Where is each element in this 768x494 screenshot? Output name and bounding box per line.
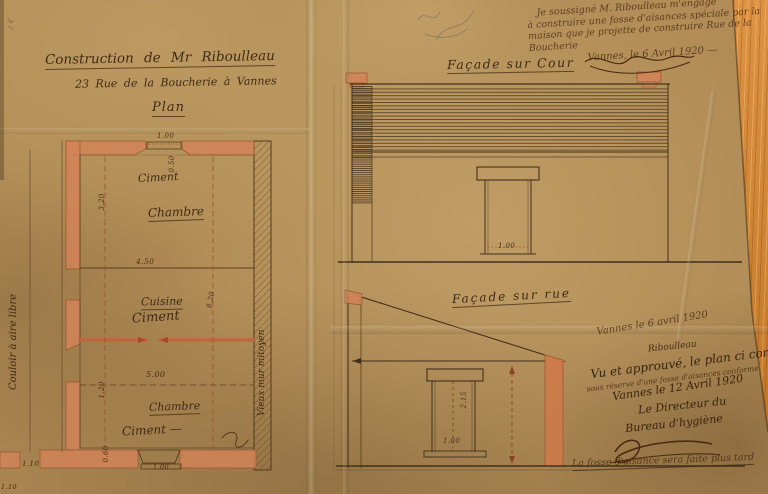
dim-bottom-door: 1.00 xyxy=(153,464,169,471)
dim-corner: 1.10 xyxy=(1,484,17,491)
pencil-scribble xyxy=(7,10,474,40)
dim-v060: 0.60 xyxy=(103,445,111,462)
room-top-finish: Ciment xyxy=(138,171,179,185)
facade-cour-label: Façade sur Cour xyxy=(447,56,574,74)
dim-rue-door: 1.00 xyxy=(443,438,460,446)
dim-v050a: 0.50 xyxy=(169,155,177,172)
couloir-label: Couloir à aire libre xyxy=(8,238,19,390)
photographed-architectural-plan: Construction de Mr Riboulleau 23 Rue de … xyxy=(0,0,768,494)
facade-cour-drawing xyxy=(338,72,742,262)
dim-v320: 3.20 xyxy=(99,193,107,210)
room-bottom-name: Chambre xyxy=(149,400,201,416)
dim-h500: 5.00 xyxy=(146,371,165,380)
dim-cour-door: 1.00 xyxy=(498,243,515,251)
dim-rue-height: 2.15 xyxy=(461,391,469,408)
room-top-name: Chambre xyxy=(148,205,204,222)
dim-v120: 1.20 xyxy=(99,381,107,398)
mur-mitoyen-label: Vieux mur mitoyen xyxy=(258,298,268,416)
dim-h450: 4.50 xyxy=(136,258,154,266)
dim-h110: 1.10 xyxy=(22,461,39,469)
dim-top-door: 1.00 xyxy=(157,133,174,141)
plan-drawing xyxy=(0,141,271,470)
title-line3-plan: Plan xyxy=(152,101,185,117)
